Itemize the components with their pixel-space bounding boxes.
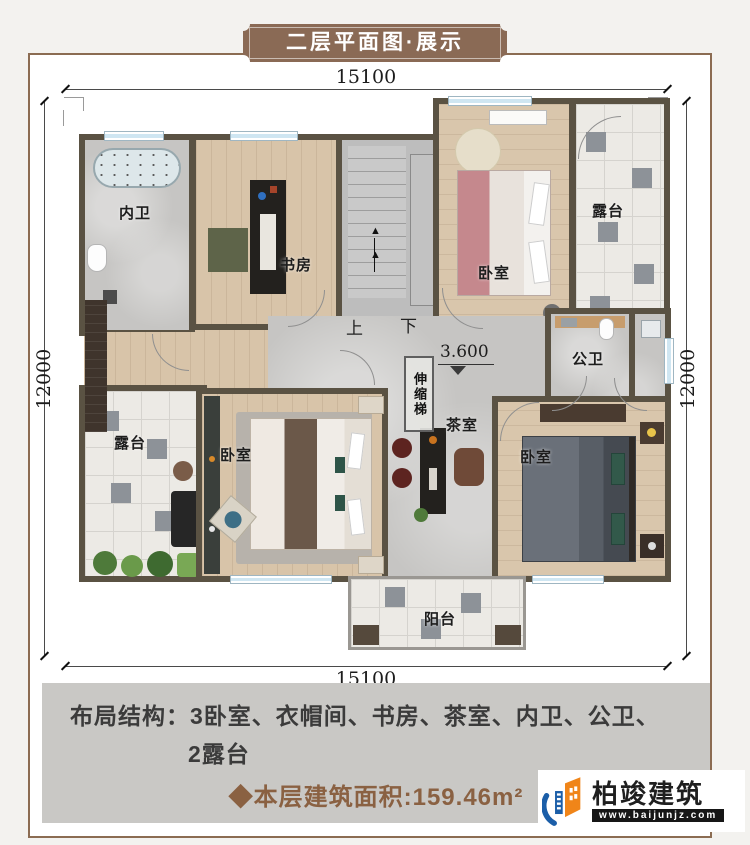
elevation-marker-icon — [450, 366, 466, 375]
bathtub — [93, 148, 181, 188]
stair-arrow-line — [374, 238, 375, 272]
tea-cabinet — [420, 428, 446, 514]
toilet — [87, 244, 107, 272]
tile-accent — [632, 168, 652, 188]
room-label-tea-room: 茶室 — [446, 414, 478, 435]
layout-structure-items: 3卧室、衣帽间、书房、茶室、内卫、公卫、 — [190, 703, 660, 729]
plant — [414, 508, 428, 522]
tea-stool — [392, 438, 412, 458]
plant — [93, 551, 117, 575]
stair-arrow-icon: ▲ — [370, 226, 381, 236]
study-rug — [208, 228, 248, 272]
tile-accent — [111, 483, 131, 503]
pillow — [528, 240, 550, 284]
tile-accent — [147, 439, 167, 459]
tea-item — [429, 468, 437, 490]
plant — [121, 555, 143, 577]
dim-extension — [64, 97, 84, 98]
headboard — [629, 437, 635, 561]
company-logo-icon — [542, 775, 588, 827]
room-label-bath-inner: 内卫 — [119, 202, 151, 223]
shelf — [489, 110, 547, 125]
desk-item — [258, 192, 266, 200]
window — [664, 338, 674, 384]
title-banner: 二层平面图·展示 — [243, 24, 507, 62]
layout-structure-label: 布局结构： — [70, 703, 190, 729]
room-label-terrace-r: 露台 — [592, 200, 624, 221]
stairs-down-label: 下 — [400, 312, 417, 337]
room-label-balcony: 阳台 — [424, 608, 456, 629]
dim-left-label: 12000 — [33, 341, 55, 417]
stair-arrow-icon: ▲ — [370, 250, 381, 260]
tile-accent — [385, 587, 405, 607]
nightstand — [358, 396, 384, 414]
window — [448, 96, 532, 106]
elevation-label: 3.600 — [440, 342, 489, 362]
tea-stool — [392, 468, 412, 488]
study-desk — [250, 180, 286, 294]
room-label-bedroom-br: 卧室 — [520, 446, 552, 467]
ladder-box: 伸缩梯 — [404, 356, 434, 432]
window — [230, 575, 332, 584]
layout-structure-line2: 2露台 — [188, 735, 250, 769]
page: { "banner": { "title": "二层平面图·展示" }, "di… — [0, 0, 750, 845]
room-label-bath-public: 公卫 — [572, 348, 604, 369]
nightstand — [358, 556, 384, 574]
tv-console — [204, 396, 220, 574]
window — [532, 575, 604, 584]
console-item — [209, 456, 215, 462]
wardrobe — [85, 300, 107, 432]
page-title: 二层平面图·展示 — [243, 24, 507, 62]
elevation-line — [438, 364, 494, 365]
side-table — [173, 461, 193, 481]
pillow — [611, 513, 625, 545]
toilet — [599, 318, 614, 340]
pillow — [347, 432, 365, 469]
cushion — [335, 495, 345, 511]
dim-right-label: 12000 — [677, 341, 699, 417]
stairs-up-label: 上 — [346, 314, 363, 339]
pillow — [347, 498, 365, 535]
logo-card: 柏竣建筑 www.baijunjz.com — [538, 770, 745, 832]
console-item — [209, 526, 215, 532]
tile-accent — [598, 222, 618, 242]
dim-extension — [63, 110, 64, 126]
dim-bottom-line — [64, 666, 668, 667]
room-label-bedroom-tr: 卧室 — [478, 262, 510, 283]
plant — [147, 551, 173, 577]
balcony-post — [495, 625, 521, 645]
room-label-terrace-l: 露台 — [114, 432, 146, 453]
lamp — [648, 542, 656, 550]
window — [230, 131, 298, 141]
tea-chair — [454, 448, 484, 486]
staircase: ▲ ▲ — [336, 134, 448, 334]
stair-treads — [348, 146, 406, 298]
dim-top-line — [64, 89, 668, 90]
pillow — [528, 182, 550, 226]
company-name: 柏竣建筑 — [592, 780, 704, 808]
lamp — [647, 428, 656, 437]
desk-top — [260, 214, 276, 270]
window — [104, 131, 164, 141]
dim-extension — [83, 97, 84, 111]
bed — [250, 418, 372, 550]
room-label-bedroom-bl: 卧室 — [220, 444, 252, 465]
cushion — [335, 457, 345, 473]
shower-fixture — [641, 320, 661, 338]
desk-item — [270, 186, 277, 193]
round-rug — [455, 128, 501, 174]
layout-structure-line1: 布局结构：3卧室、衣帽间、书房、茶室、内卫、公卫、 — [70, 697, 660, 731]
sink — [561, 318, 577, 327]
nightstand — [640, 534, 664, 558]
dim-top-label: 15100 — [64, 66, 668, 88]
room-bedroom-bl — [196, 388, 388, 582]
company-url: www.baijunjz.com — [592, 809, 724, 822]
tea-item — [429, 436, 437, 444]
room-label-study: 书房 — [280, 254, 312, 275]
corner-table — [640, 422, 664, 444]
tile-accent — [634, 264, 654, 284]
chair-cushion — [221, 508, 245, 532]
tile-accent — [461, 593, 481, 613]
pillow — [611, 453, 625, 485]
balcony-post — [353, 625, 379, 645]
